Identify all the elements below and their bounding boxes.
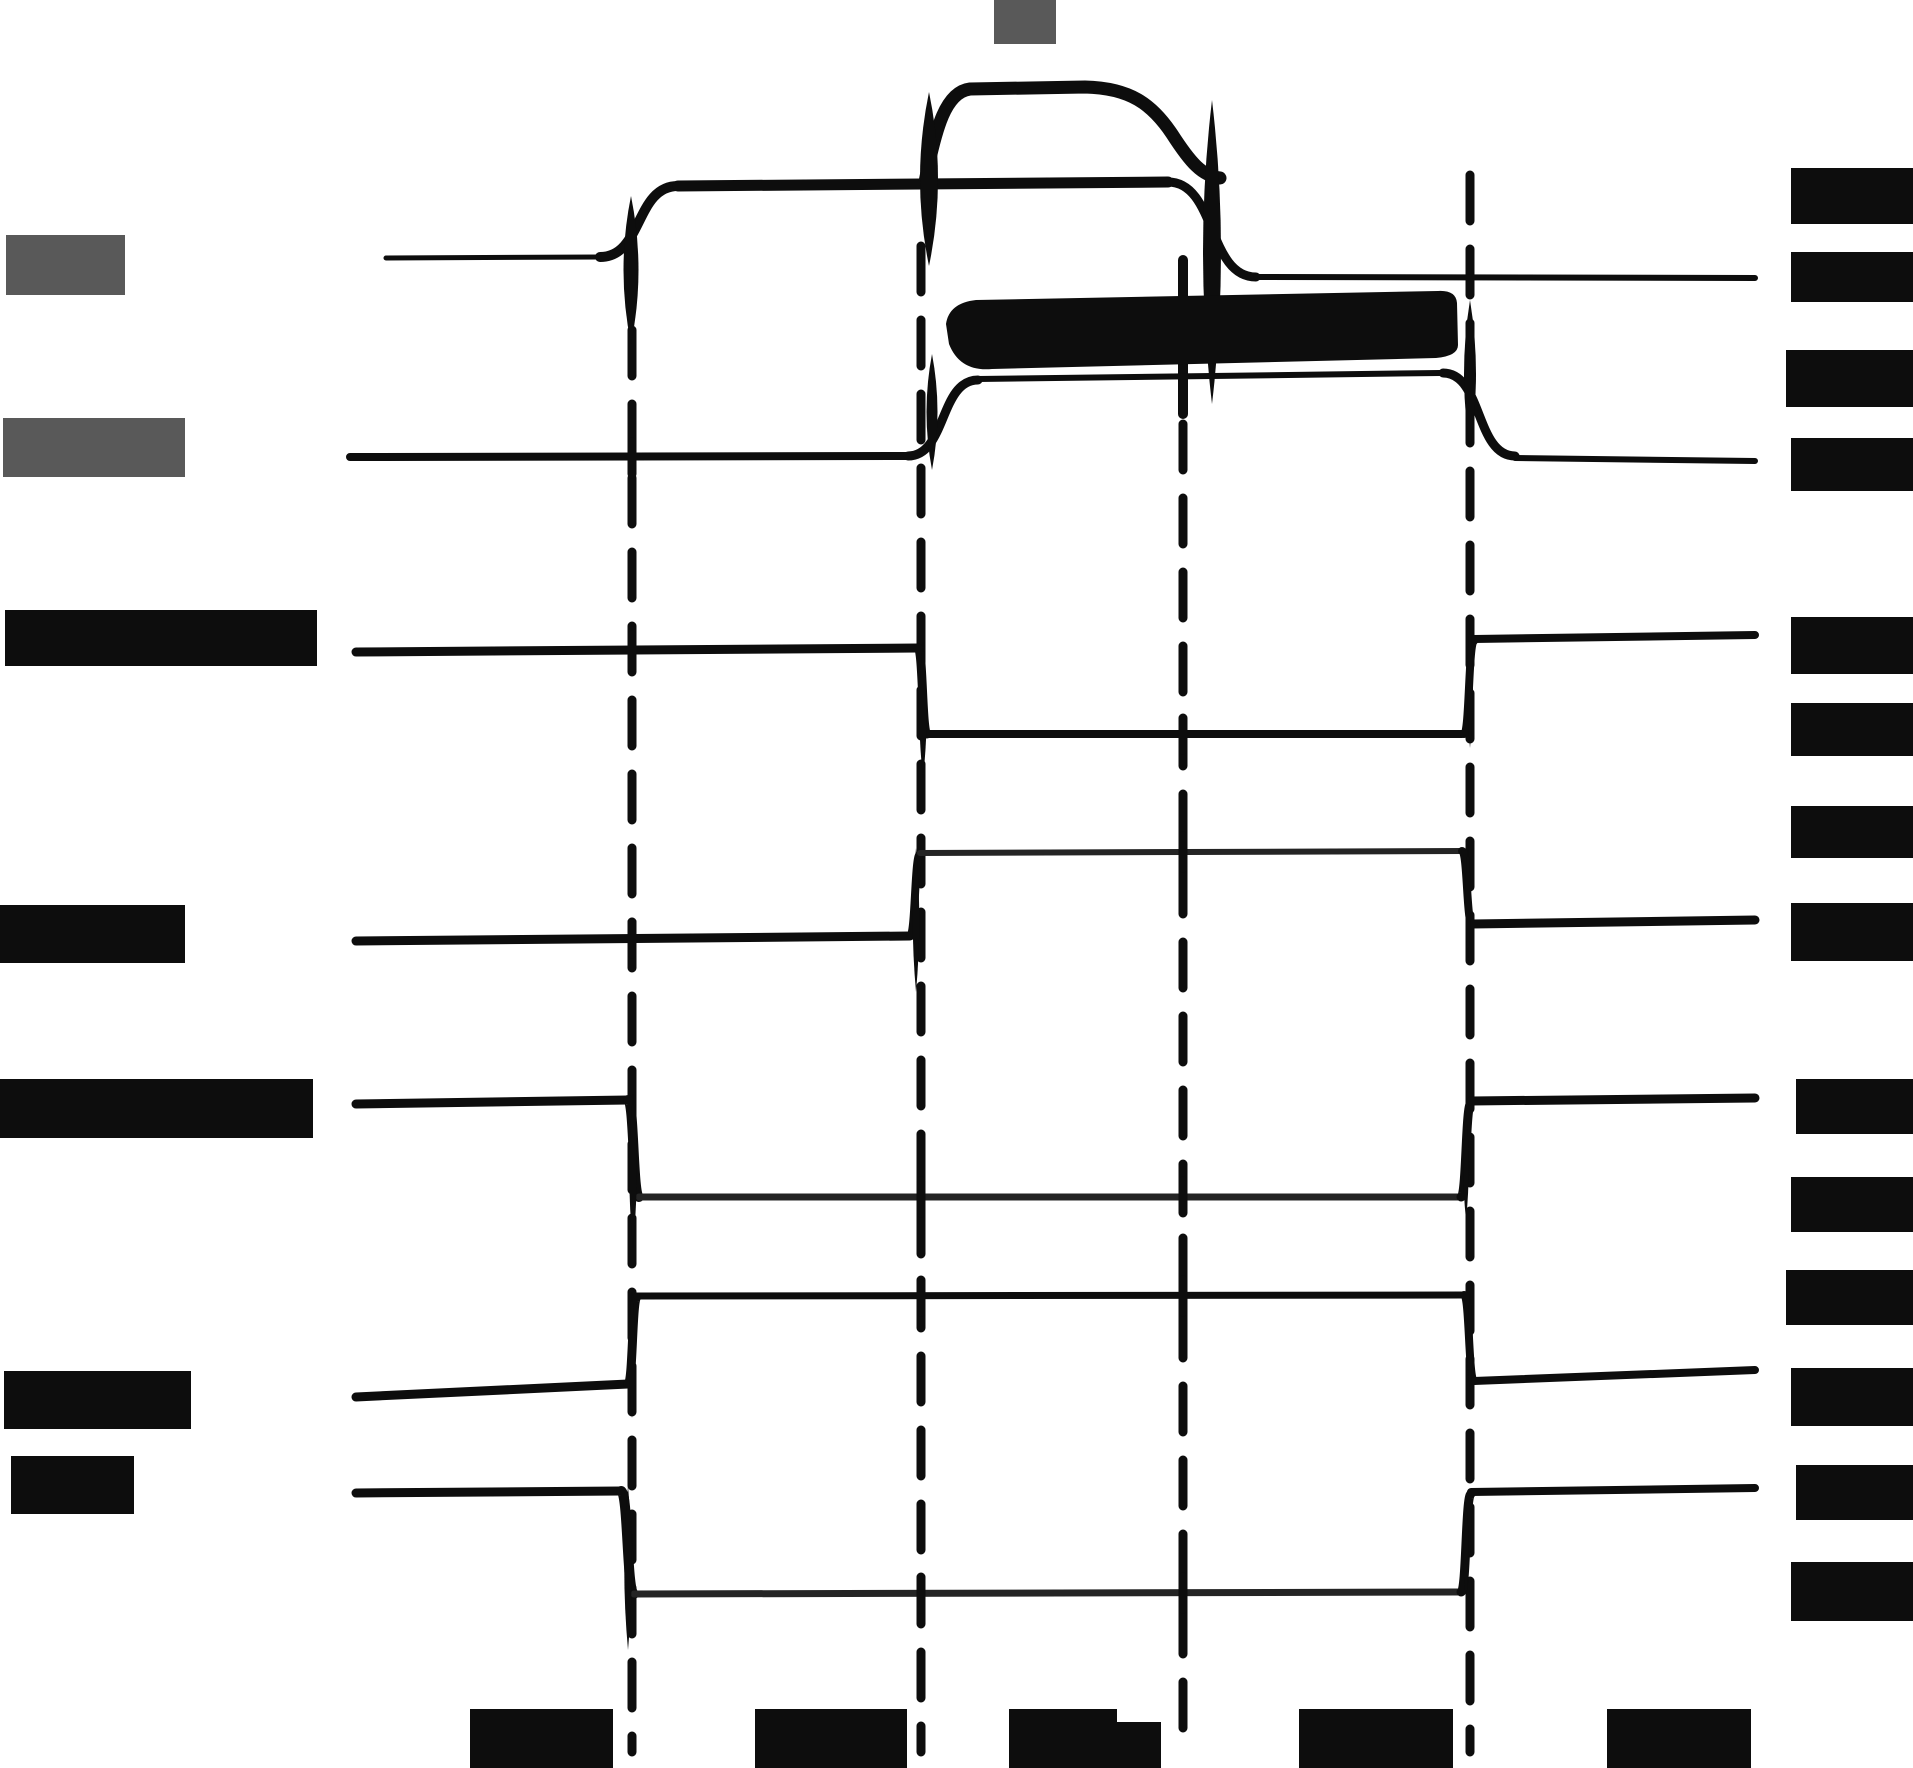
redacted-label-right-3	[1786, 350, 1913, 407]
redacted-label-right-5	[1791, 617, 1913, 674]
redacted-label-bottom-5	[1299, 1709, 1453, 1768]
redacted-label-right-8	[1791, 903, 1913, 961]
redacted-label-right-4	[1791, 438, 1913, 491]
redacted-label-right-1	[1791, 168, 1913, 224]
redacted-label-top-1	[994, 0, 1056, 44]
redacted-label-left-7	[11, 1456, 134, 1514]
redacted-label-right-14	[1791, 1562, 1913, 1621]
redacted-label-left-1	[6, 235, 125, 295]
redacted-label-bottom-4	[1117, 1722, 1161, 1768]
redacted-label-left-5	[0, 1079, 313, 1138]
redacted-label-right-10	[1791, 1177, 1913, 1232]
redacted-label-bottom-6	[1607, 1709, 1751, 1768]
redacted-label-right-11	[1786, 1270, 1913, 1325]
redacted-label-left-4	[0, 905, 185, 963]
redacted-label-right-2	[1791, 252, 1913, 302]
redacted-label-right-12	[1791, 1368, 1913, 1426]
redacted-label-right-6	[1791, 703, 1913, 756]
redacted-label-bottom-3	[1009, 1709, 1117, 1768]
redacted-label-right-7	[1791, 806, 1913, 858]
redacted-label-bottom-2	[755, 1709, 907, 1768]
redacted-label-right-9	[1796, 1079, 1913, 1134]
redacted-label-left-3	[5, 610, 317, 666]
redacted-label-left-6	[4, 1371, 191, 1429]
redacted-label-left-2	[3, 418, 185, 477]
redacted-label-right-13	[1796, 1465, 1913, 1520]
redacted-label-bottom-1	[470, 1709, 613, 1768]
timing-diagram	[0, 0, 1913, 1768]
redaction-layer	[0, 0, 1913, 1768]
